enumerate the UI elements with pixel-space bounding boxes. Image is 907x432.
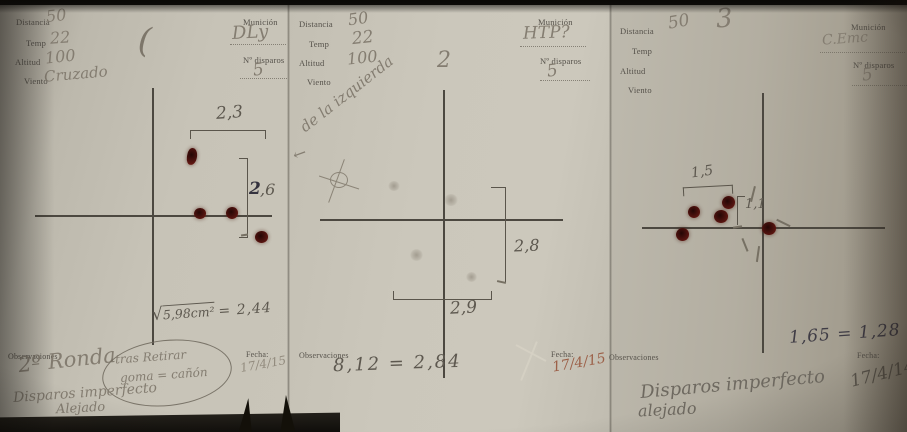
altitud-label: Altitud: [299, 58, 325, 68]
distancia-value-handwritten: 50: [347, 10, 369, 29]
temp-value-handwritten: 22: [49, 29, 70, 46]
bullet-hole: [194, 208, 206, 219]
measurement-horizontal: 2,9: [450, 299, 478, 317]
temp-label: Temp: [309, 39, 329, 49]
distancia-value-handwritten: 50: [667, 12, 691, 32]
municion-dotted-line: [820, 44, 905, 53]
faint-mark: [466, 272, 477, 282]
bullet-hole: [722, 196, 735, 209]
faint-mark: [388, 181, 400, 191]
municion-dotted-line: [520, 38, 586, 47]
distancia-label: Distancia: [620, 26, 654, 36]
faint-mark: [444, 194, 458, 206]
bullet-hole: [688, 206, 700, 218]
measurement-horizontal: 1,5: [690, 164, 714, 181]
temp-label: Temp: [26, 38, 46, 48]
observaciones-handwritten-3: Alejado: [56, 401, 106, 417]
observaciones-formula-handwritten: 8,12 = 2,84: [333, 353, 462, 375]
measurement-vertical: 1,1: [745, 198, 766, 211]
distancia-label: Distancia: [16, 17, 50, 27]
measurement-bracket-horizontal: [190, 130, 266, 139]
measurement-vertical: 2,8: [514, 238, 540, 255]
bullet-hole: [714, 210, 728, 223]
disparos-label: Nº disparos: [853, 60, 894, 70]
altitud-label: Altitud: [620, 66, 646, 76]
measurement-bracket-vertical: [737, 196, 745, 225]
bullet-hole: [676, 228, 689, 241]
bullet-hole: [226, 207, 238, 219]
observaciones-label: Observaciones: [609, 353, 659, 362]
altitud-label: Altitud: [15, 57, 41, 67]
measurement-bracket-vertical: [239, 158, 248, 238]
sheet-seam: [287, 5, 290, 432]
viento-label: Viento: [628, 85, 652, 95]
stray-pencil-mark: 3: [715, 5, 733, 32]
distancia-label: Distancia: [299, 19, 333, 29]
municion-dotted-line: [230, 36, 286, 45]
sheet-seam: [609, 5, 612, 432]
disparos-dotted-line: [540, 72, 590, 81]
measurement-horizontal: 2,3: [215, 104, 243, 123]
measurement-bracket-vertical: [491, 187, 506, 282]
temp-value-handwritten: 22: [351, 29, 374, 48]
vertical-axis: [443, 90, 445, 378]
formula-radicand: 5,98cm²: [162, 302, 215, 323]
bullet-hole: [762, 222, 776, 235]
viento-label: Viento: [307, 77, 331, 87]
disparos-label: Nº disparos: [243, 55, 284, 65]
disparos-dotted-line: [852, 77, 907, 86]
observaciones-handwritten-2: alejado: [638, 400, 697, 419]
stray-pencil-mark: 2: [437, 50, 451, 72]
stray-pencil-mark: (: [137, 24, 153, 59]
horizontal-axis: [320, 219, 563, 221]
measurement-bracket-horizontal: [393, 291, 492, 300]
bullet-hole: [255, 231, 268, 243]
fecha-label: Fecha:: [857, 351, 880, 360]
faint-mark: [410, 249, 423, 261]
formula-result: = 2,44: [218, 300, 272, 320]
temp-label: Temp: [632, 46, 652, 56]
altitud-value-handwritten: 100: [44, 47, 76, 66]
target-sheets-photo: Distancia 50 Temp 22 Altitud 100 Viento …: [0, 0, 907, 432]
disparos-dotted-line: [240, 70, 287, 79]
measurement-vertical-rest: ,6: [260, 182, 275, 198]
distancia-value-handwritten: 50: [45, 7, 67, 25]
